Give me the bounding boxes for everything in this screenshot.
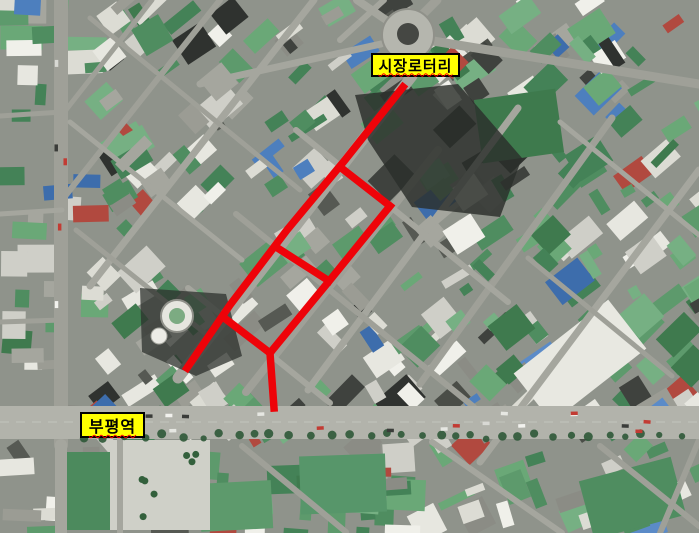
label-market-rotary: 시장로터리: [371, 53, 460, 77]
label-bupyeong-station: 부평역: [80, 412, 145, 438]
aerial-map: 시장로터리 부평역: [0, 0, 699, 533]
satellite-photo: [0, 0, 699, 533]
label-market-rotary-text: 시장로터리: [378, 55, 452, 76]
route-station-connector: [270, 353, 274, 408]
label-bupyeong-station-text: 부평역: [89, 413, 136, 437]
